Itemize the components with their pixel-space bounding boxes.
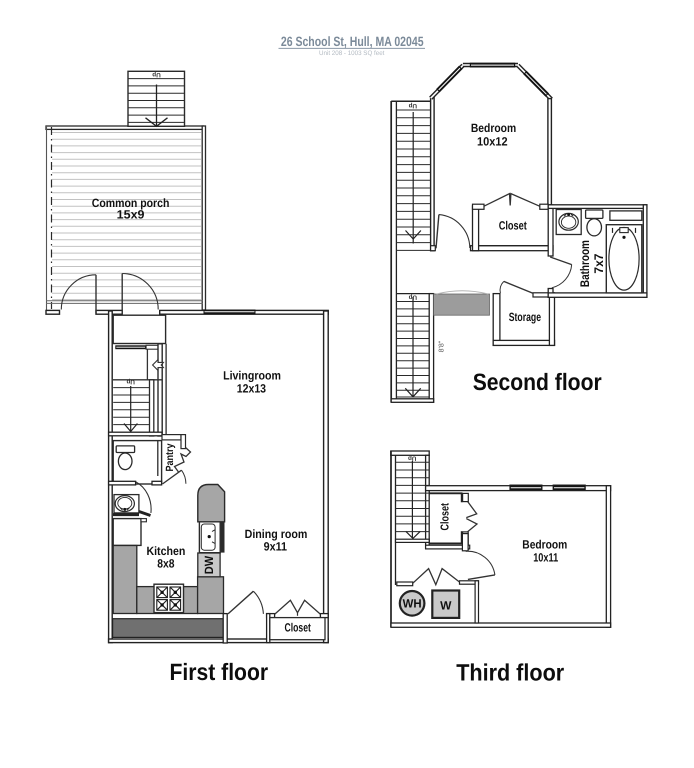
svg-text:Livingroom: Livingroom [223,369,281,383]
svg-text:First floor: First floor [170,660,269,686]
svg-text:Storage: Storage [509,310,542,324]
svg-text:Closet: Closet [440,503,452,531]
svg-text:Bedroom: Bedroom [471,121,516,135]
svg-text:Closet: Closet [499,218,527,232]
svg-text:Up: Up [408,102,417,109]
svg-text:W: W [440,599,452,613]
svg-text:10x11: 10x11 [533,550,558,564]
svg-text:15x9: 15x9 [117,207,145,221]
svg-text:WH: WH [403,596,422,610]
svg-text:Third floor: Third floor [456,660,564,686]
svg-text:8x8: 8x8 [157,557,175,571]
svg-text:10x12: 10x12 [477,135,508,149]
svg-text:7x7: 7x7 [592,254,606,274]
svg-text:DW: DW [202,555,216,574]
svg-text:Up: Up [126,378,135,385]
svg-text:Bedroom: Bedroom [522,537,567,551]
svg-text:9x11: 9x11 [264,539,288,553]
svg-text:26 School St, Hull, MA 02045: 26 School St, Hull, MA 02045 [281,34,424,49]
svg-text:12x13: 12x13 [237,382,267,396]
svg-text:Unit 208 - 1003 SQ feet: Unit 208 - 1003 SQ feet [319,50,385,57]
svg-text:Bathroom: Bathroom [578,240,592,287]
svg-text:Pantry: Pantry [164,443,176,471]
svg-text:Up: Up [152,71,161,78]
svg-text:Second floor: Second floor [473,370,602,396]
svg-text:Closet: Closet [285,620,311,634]
svg-text:Up: Up [408,455,417,462]
svg-text:8'8": 8'8" [439,340,446,352]
